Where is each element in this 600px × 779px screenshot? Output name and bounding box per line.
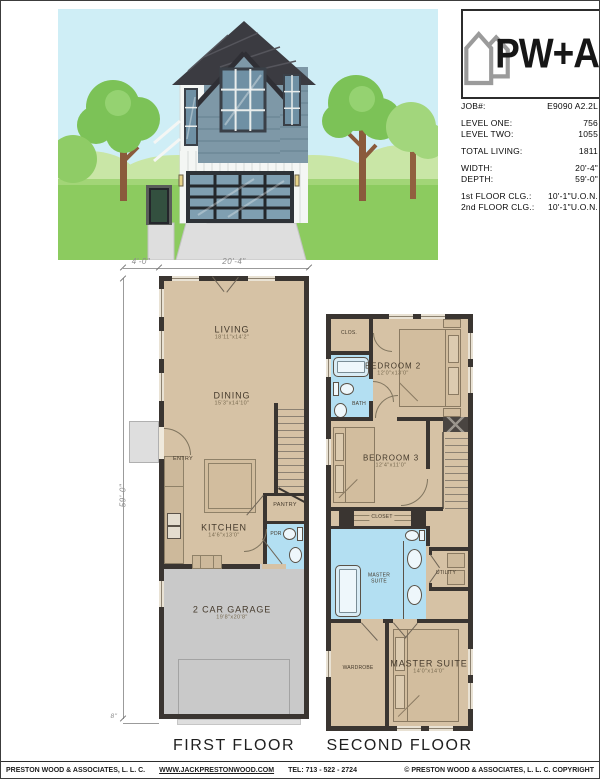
spec-row-width: WIDTH:20'-4"	[461, 163, 598, 174]
living-name: LIVING	[215, 325, 250, 335]
spec-row-first-clg: 1st FLOOR CLG.:10'-1"U.O.N.	[461, 191, 598, 202]
pillow	[448, 335, 459, 363]
spec-value: 1055	[578, 129, 598, 140]
right-window	[284, 75, 300, 125]
wardrobe-label: WARDROBE	[343, 666, 374, 672]
window	[468, 649, 473, 675]
wardrobe-name: WARDROBE	[343, 665, 374, 671]
house-rendering	[58, 9, 438, 260]
utility-wall-left2	[429, 583, 432, 591]
window	[159, 289, 164, 317]
footer-phone: TEL: 713 - 522 - 2724	[288, 767, 357, 774]
pillow	[395, 675, 405, 709]
wardrobe-wall-right	[385, 623, 389, 726]
nightstand	[443, 408, 461, 417]
entry-stoop	[129, 421, 159, 463]
powder-wall-top	[263, 521, 304, 524]
master-toilet-tank	[419, 530, 425, 541]
bedroom2-size: 12'0"x13'0"	[365, 370, 421, 376]
dim-porch: 4'-0"	[123, 257, 159, 266]
entry-name: ENTRY	[173, 456, 193, 462]
master-bathtub	[335, 565, 361, 617]
master-sink	[407, 549, 422, 569]
bedroom3-label: BEDROOM 3 12'4"x11'0"	[363, 453, 419, 469]
wall-master-top	[331, 619, 361, 623]
utility-bifold	[430, 554, 440, 568]
dining-label: DINING 15'3"x14'10"	[214, 391, 251, 408]
footer-website-link[interactable]: WWW.JACKPRESTONWOOD.COM	[159, 767, 274, 774]
window	[468, 333, 473, 359]
bed3-door-arc	[401, 479, 428, 506]
master-name: MASTER SUITE	[390, 659, 467, 669]
range-line	[213, 555, 214, 569]
footer-copyright: © PRESTON WOOD & ASSOCIATES, L. L. C. CO…	[404, 767, 594, 774]
dim-offset: 8"	[107, 713, 121, 720]
window	[159, 581, 164, 607]
toilet-bowl	[283, 528, 296, 540]
spec-label: LEVEL ONE:	[461, 118, 512, 129]
bath-name: BATH	[352, 401, 366, 407]
clos-label: CLOS.	[341, 331, 357, 337]
stairs	[278, 403, 304, 495]
driveway	[176, 223, 306, 260]
nightstand	[443, 319, 461, 328]
walkway	[148, 223, 174, 260]
front-window	[221, 69, 265, 131]
closet-block	[411, 509, 426, 526]
toilet-bowl	[340, 383, 354, 395]
range-line	[200, 555, 201, 569]
window	[468, 367, 473, 393]
bathtub	[333, 357, 369, 377]
clos-door-arc	[373, 333, 392, 352]
dining-size: 15'3"x14'10"	[214, 401, 251, 407]
spec-label: DEPTH:	[461, 174, 493, 185]
living-size: 18'11"x14'2"	[215, 335, 250, 341]
sconce-right	[295, 175, 299, 186]
wall-bed3-right	[426, 421, 430, 469]
pwa-logo: PW+A	[461, 9, 600, 99]
spec-label: 1st FLOOR CLG.:	[461, 191, 532, 202]
kitchen-label: KITCHEN 14'6"x13'0"	[201, 523, 247, 540]
powder-label: PDR	[270, 532, 281, 538]
spec-value: 1811	[579, 146, 598, 157]
driveway-outline	[178, 659, 290, 714]
first-floor-plan: 2 CAR GARAGE 19'8"x20'8" LIVING 18'11"x1…	[159, 276, 309, 719]
bedroom3-size: 12'4"x11'0"	[363, 462, 419, 468]
spec-row-level-two: LEVEL TWO:1055	[461, 129, 598, 140]
entry-door-arc	[164, 428, 191, 455]
stair-rail	[442, 432, 444, 509]
window	[248, 276, 275, 281]
master-sink	[407, 585, 422, 605]
entry-label: ENTRY	[173, 456, 193, 462]
closet-name: CLOSET	[371, 514, 392, 520]
range	[192, 555, 222, 569]
garage-door	[186, 171, 294, 223]
bedroom3-name: BEDROOM 3	[363, 453, 419, 462]
garage-name: 2 CAR GARAGE	[193, 605, 271, 615]
window	[326, 439, 331, 465]
master-bath-line2: SUITE	[371, 578, 387, 584]
pantry-label: PANTRY	[273, 502, 297, 508]
counter-divider	[164, 486, 184, 487]
window	[159, 373, 164, 401]
garage-label: 2 CAR GARAGE 19'8"x20'8"	[193, 605, 271, 622]
kitchen-counter	[164, 456, 184, 564]
footer-company: PRESTON WOOD & ASSOCIATES, L. L. C.	[6, 767, 145, 774]
garage-entry-gap	[262, 564, 286, 569]
pillow	[335, 465, 344, 493]
left-narrow-window	[185, 89, 197, 145]
window	[429, 726, 453, 731]
spec-value: 59'-0"	[575, 174, 598, 185]
toilet-tank	[333, 382, 339, 396]
spec-row-total-living: TOTAL LIVING:1811	[461, 146, 598, 157]
closet-label: CLOSET	[369, 515, 394, 521]
bath-label: BATH	[352, 402, 366, 408]
wall-bed2-bottom	[331, 417, 373, 421]
plan-sheet: PW+A JOB#:E9090 A2.2L LEVEL ONE:756 LEVE…	[0, 0, 600, 779]
clos-wall-right	[369, 319, 373, 355]
dim-line-bottom	[123, 723, 159, 724]
logo-text: PW+A	[495, 30, 599, 77]
bedroom2-label: BEDROOM 2 12'0"x13'0"	[365, 361, 421, 377]
spec-row-second-clg: 2nd FLOOR CLG.:10'-1"U.O.N.	[461, 202, 598, 213]
window	[421, 314, 445, 319]
spec-value: 756	[583, 118, 598, 129]
kitchen-size: 14'6"x13'0"	[201, 533, 247, 539]
spec-label: LEVEL TWO:	[461, 129, 514, 140]
stairs	[445, 432, 468, 509]
powder-sink	[289, 547, 302, 563]
window	[326, 651, 331, 677]
side-door	[146, 185, 172, 225]
master-toilet-bowl	[405, 530, 419, 541]
first-floor-title: FIRST FLOOR	[159, 737, 309, 755]
wardrobe-door-leaf	[361, 622, 378, 641]
powder-name: PDR	[270, 531, 281, 537]
second-floor-plan: CLOS. BATH BEDROOM 2 12'0"x13'0"	[326, 314, 473, 731]
wall-bed2-bottom2	[397, 417, 445, 421]
pillow	[448, 367, 459, 395]
window	[397, 726, 421, 731]
kitchen-island	[204, 459, 256, 513]
spec-label: JOB#:	[461, 101, 486, 112]
closet-block	[339, 509, 354, 526]
pillow	[335, 433, 344, 461]
kitchen-sink	[167, 513, 181, 526]
dim-line-top	[123, 268, 309, 269]
spec-label: WIDTH:	[461, 163, 492, 174]
spec-value: 10'-1"U.O.N.	[548, 202, 598, 213]
french-door-leaf	[226, 277, 238, 293]
dim-width: 20'-4"	[159, 257, 309, 266]
pantry-wall-top	[263, 493, 304, 496]
stair-hatch-panel	[443, 417, 468, 432]
living-label: LIVING 18'11"x14'2"	[215, 325, 250, 342]
bed2-pillow-line	[445, 329, 446, 407]
spec-row-level-one: LEVEL ONE:756	[461, 118, 598, 129]
window	[172, 276, 199, 281]
dining-name: DINING	[214, 391, 251, 401]
clos-name: CLOS.	[341, 330, 357, 336]
utility-wall-top	[429, 547, 468, 551]
toilet-tank	[297, 527, 303, 541]
master-bath-label: MASTER SUITE	[368, 573, 390, 585]
second-floor-title: SECOND FLOOR	[326, 737, 473, 755]
spec-row-job: JOB#:E9090 A2.2L	[461, 101, 598, 112]
spec-value: 20'-4"	[575, 163, 598, 174]
kitchen-name: KITCHEN	[201, 523, 247, 533]
dim-depth: 59'-0"	[119, 466, 128, 526]
master-size: 14'0"x14'0"	[390, 669, 467, 675]
window	[389, 314, 413, 319]
spec-panel: JOB#:E9090 A2.2L LEVEL ONE:756 LEVEL TWO…	[461, 101, 598, 213]
spec-label: TOTAL LIVING:	[461, 146, 523, 157]
utility-label: UTILITY	[436, 571, 456, 577]
master-label: MASTER SUITE 14'0"x14'0"	[390, 659, 467, 676]
pantry-name: PANTRY	[273, 502, 297, 508]
french-door-leaf	[212, 276, 224, 292]
wall-master-top3	[417, 619, 468, 623]
footer-bar: PRESTON WOOD & ASSOCIATES, L. L. C. WWW.…	[1, 761, 599, 778]
washer-dryer	[447, 553, 465, 568]
spec-value: E9090 A2.2L	[547, 101, 598, 112]
master-bath-wall-right	[426, 526, 430, 546]
window	[326, 359, 331, 377]
spec-row-depth: DEPTH:59'-0"	[461, 174, 598, 185]
kitchen-sink	[167, 526, 181, 539]
vanity-edge	[403, 541, 404, 619]
bath-sink	[334, 403, 347, 418]
garage-apron	[177, 719, 301, 725]
spec-label: 2nd FLOOR CLG.:	[461, 202, 534, 213]
garage-size: 19'8"x20'8"	[193, 615, 271, 621]
bedroom2-name: BEDROOM 2	[365, 361, 421, 370]
utility-wall-bottom	[429, 587, 468, 591]
sconce-left	[179, 175, 183, 186]
window	[468, 683, 473, 709]
utility-name: UTILITY	[436, 570, 456, 576]
window	[159, 331, 164, 359]
spec-value: 10'-1"U.O.N.	[548, 191, 598, 202]
